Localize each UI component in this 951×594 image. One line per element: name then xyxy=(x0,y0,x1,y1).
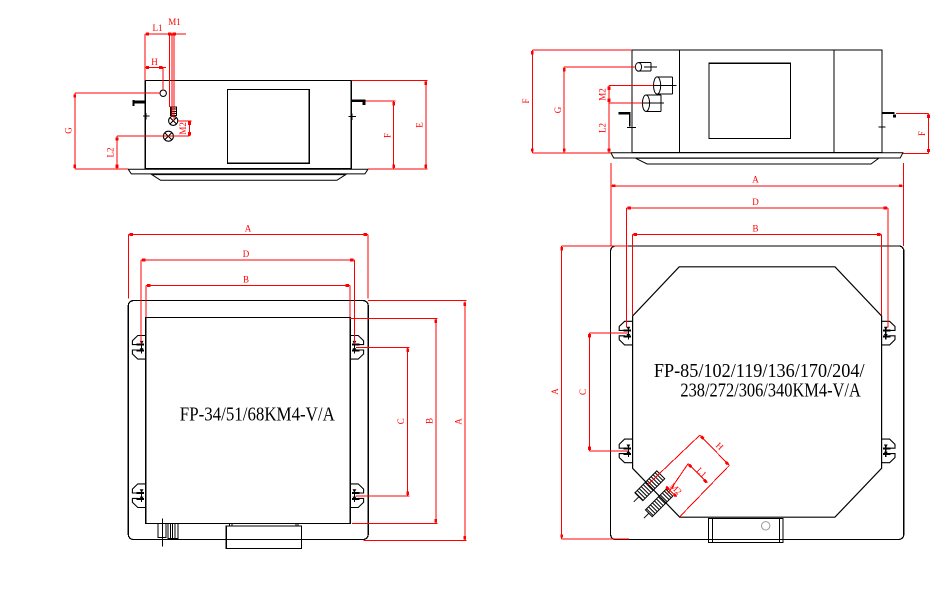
svg-text:L2: L2 xyxy=(106,148,116,158)
svg-text:G: G xyxy=(553,106,563,113)
svg-text:A: A xyxy=(453,418,463,425)
svg-text:FP-34/51/68KM4-V/A: FP-34/51/68KM4-V/A xyxy=(180,404,335,426)
svg-text:C: C xyxy=(396,418,406,424)
svg-text:B: B xyxy=(243,274,249,284)
svg-text:M2: M2 xyxy=(178,122,188,135)
svg-text:M2: M2 xyxy=(597,88,607,101)
svg-text:F: F xyxy=(917,131,927,136)
svg-text:H: H xyxy=(714,440,726,452)
svg-text:M1: M1 xyxy=(168,17,181,27)
svg-text:F: F xyxy=(521,98,531,103)
svg-text:A: A xyxy=(550,388,560,395)
svg-text:F: F xyxy=(382,133,392,138)
svg-text:L2: L2 xyxy=(597,123,607,133)
svg-text:G: G xyxy=(63,127,73,134)
svg-text:L1: L1 xyxy=(153,23,163,33)
svg-text:B: B xyxy=(752,224,758,234)
svg-text:A: A xyxy=(245,223,252,233)
svg-text:D: D xyxy=(243,249,250,259)
svg-text:H: H xyxy=(151,57,158,67)
svg-text:E: E xyxy=(415,122,425,128)
svg-text:238/272/306/340KM4-V/A: 238/272/306/340KM4-V/A xyxy=(680,380,861,402)
svg-text:C: C xyxy=(578,389,588,395)
svg-text:D: D xyxy=(752,197,759,207)
svg-text:B: B xyxy=(424,418,434,424)
svg-text:L1: L1 xyxy=(695,465,709,479)
svg-text:A: A xyxy=(752,175,759,185)
